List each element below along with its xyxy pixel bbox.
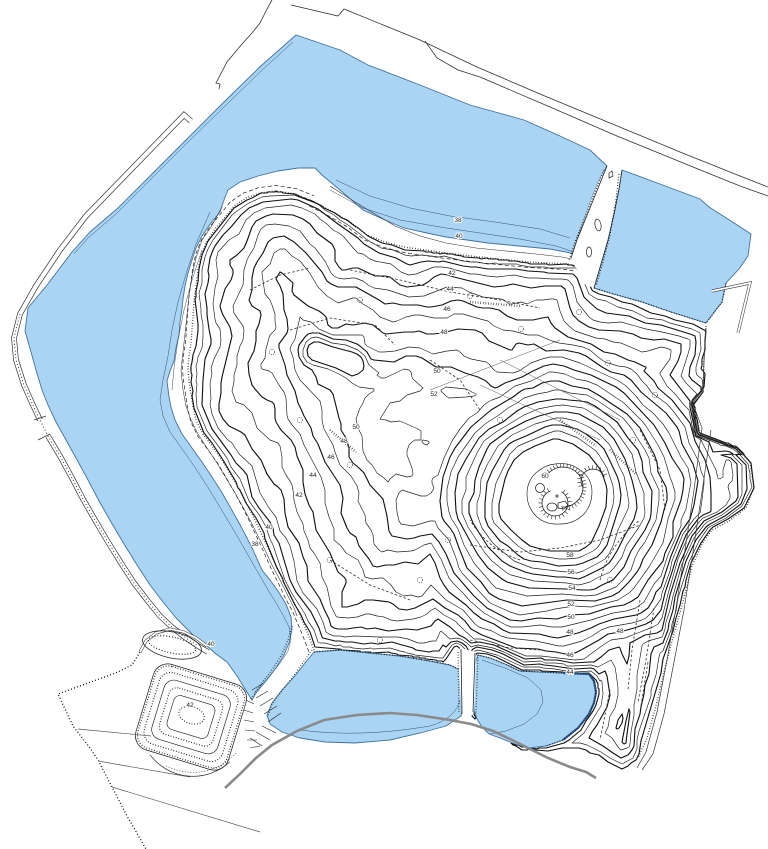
- svg-text:52: 52: [567, 601, 575, 608]
- svg-text:38: 38: [251, 541, 259, 548]
- svg-text:54: 54: [568, 585, 576, 592]
- svg-text:40: 40: [265, 524, 273, 531]
- svg-text:38: 38: [454, 217, 462, 224]
- svg-text:48: 48: [340, 438, 348, 445]
- svg-text:46: 46: [327, 454, 335, 461]
- svg-text:48: 48: [440, 329, 448, 336]
- svg-text:48: 48: [616, 628, 624, 635]
- svg-text:56: 56: [567, 569, 575, 576]
- svg-text:40: 40: [207, 641, 215, 648]
- svg-text:52: 52: [430, 391, 438, 398]
- svg-text:44: 44: [566, 669, 574, 676]
- svg-text:50: 50: [433, 368, 441, 375]
- svg-text:46: 46: [443, 306, 451, 313]
- svg-text:48: 48: [566, 629, 574, 636]
- svg-text:42: 42: [186, 702, 194, 709]
- svg-text:42: 42: [295, 492, 303, 499]
- svg-text:44: 44: [309, 472, 317, 479]
- svg-text:44: 44: [446, 286, 454, 293]
- svg-text:58: 58: [566, 552, 574, 559]
- svg-text:50: 50: [352, 424, 360, 431]
- svg-text:50: 50: [567, 614, 575, 621]
- svg-text:60: 60: [541, 473, 549, 480]
- svg-text:42: 42: [448, 270, 456, 277]
- svg-text:40: 40: [455, 233, 463, 240]
- svg-text:46: 46: [566, 652, 574, 659]
